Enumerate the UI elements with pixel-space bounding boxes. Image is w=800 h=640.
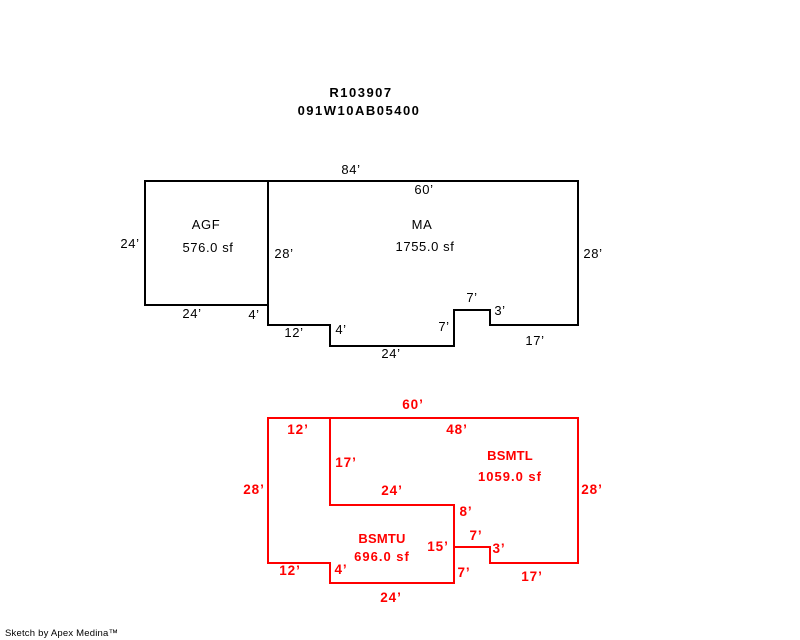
svg-text:576.0 sf: 576.0 sf bbox=[182, 240, 233, 255]
svg-text:24’: 24’ bbox=[381, 346, 400, 361]
svg-text:28’: 28’ bbox=[274, 246, 293, 261]
svg-text:28’: 28’ bbox=[581, 482, 602, 497]
svg-text:4’: 4’ bbox=[335, 322, 346, 337]
svg-text:17’: 17’ bbox=[525, 333, 544, 348]
svg-text:17’: 17’ bbox=[521, 569, 542, 584]
svg-text:4’: 4’ bbox=[248, 307, 259, 322]
svg-text:15’: 15’ bbox=[427, 539, 448, 554]
svg-text:48’: 48’ bbox=[446, 422, 467, 437]
svg-text:R103907: R103907 bbox=[329, 85, 392, 100]
svg-text:4’: 4’ bbox=[334, 562, 347, 577]
svg-text:AGF: AGF bbox=[192, 217, 221, 232]
svg-text:MA: MA bbox=[412, 217, 433, 232]
svg-text:17’: 17’ bbox=[335, 455, 356, 470]
svg-text:BSMTU: BSMTU bbox=[358, 531, 405, 546]
svg-text:3’: 3’ bbox=[494, 303, 505, 318]
svg-text:BSMTL: BSMTL bbox=[487, 448, 533, 463]
svg-text:24’: 24’ bbox=[381, 483, 402, 498]
svg-text:24’: 24’ bbox=[120, 236, 139, 251]
svg-text:7’: 7’ bbox=[438, 319, 449, 334]
svg-text:12’: 12’ bbox=[284, 325, 303, 340]
svg-text:8’: 8’ bbox=[459, 504, 472, 519]
svg-text:28’: 28’ bbox=[243, 482, 264, 497]
svg-text:696.0 sf: 696.0 sf bbox=[354, 549, 410, 564]
svg-text:28’: 28’ bbox=[583, 246, 602, 261]
svg-text:60’: 60’ bbox=[414, 182, 433, 197]
svg-text:7’: 7’ bbox=[457, 565, 470, 580]
svg-text:7’: 7’ bbox=[466, 290, 477, 305]
svg-text:7’: 7’ bbox=[469, 528, 482, 543]
svg-text:091W10AB05400: 091W10AB05400 bbox=[298, 103, 421, 118]
svg-text:60’: 60’ bbox=[402, 397, 423, 412]
svg-text:Sketch by Apex Medina™: Sketch by Apex Medina™ bbox=[5, 628, 118, 639]
svg-text:1755.0 sf: 1755.0 sf bbox=[396, 239, 455, 254]
svg-text:12’: 12’ bbox=[287, 422, 308, 437]
svg-text:24’: 24’ bbox=[182, 306, 201, 321]
svg-text:1059.0 sf: 1059.0 sf bbox=[478, 469, 542, 484]
svg-text:84’: 84’ bbox=[341, 162, 360, 177]
svg-text:3’: 3’ bbox=[492, 541, 505, 556]
svg-text:24’: 24’ bbox=[380, 590, 401, 605]
svg-text:12’: 12’ bbox=[279, 563, 300, 578]
